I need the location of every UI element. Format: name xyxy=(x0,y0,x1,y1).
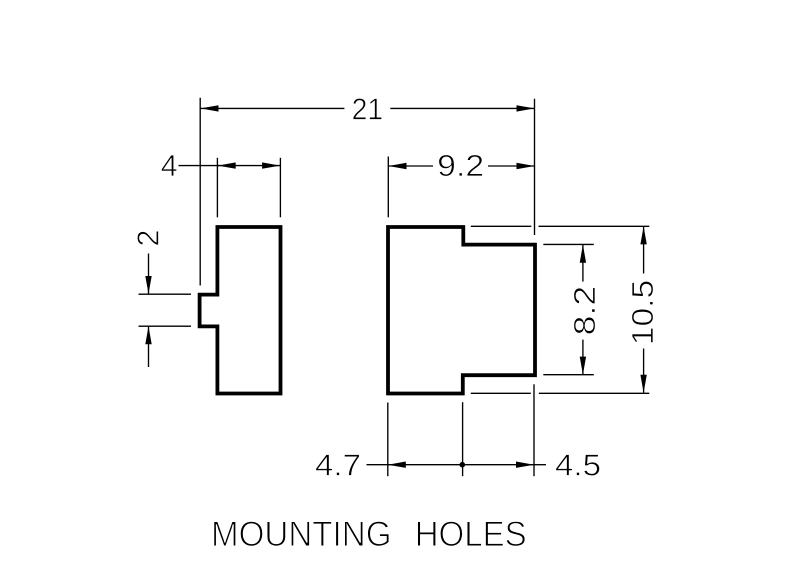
svg-text:4.5: 4.5 xyxy=(555,450,601,483)
svg-text:2: 2 xyxy=(132,230,165,247)
svg-text:4.7: 4.7 xyxy=(315,450,361,483)
svg-text:MOUNTING: MOUNTING xyxy=(211,514,392,554)
svg-text:10.5: 10.5 xyxy=(627,280,660,346)
svg-text:4: 4 xyxy=(161,150,178,183)
svg-text:HOLES: HOLES xyxy=(415,514,527,554)
svg-text:9.2: 9.2 xyxy=(437,150,484,183)
svg-text:8.2: 8.2 xyxy=(569,286,602,336)
svg-text:21: 21 xyxy=(352,93,384,126)
